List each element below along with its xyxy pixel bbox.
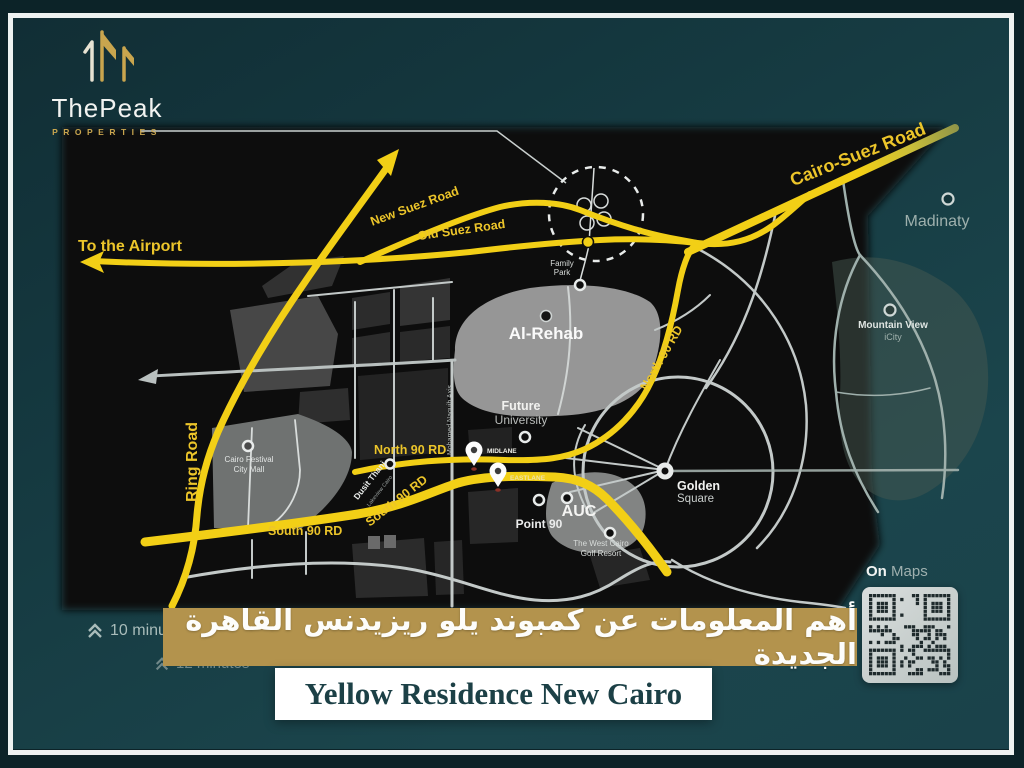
english-title-banner: Yellow Residence New Cairo — [275, 668, 712, 720]
naguib-axis-label: Mohamed Naguib Axis — [447, 384, 454, 455]
cairo-festival-marker — [243, 441, 253, 451]
on-maps-label-bold: On — [866, 563, 887, 580]
north-90-h-label: North 90 RD — [374, 443, 446, 457]
future-university-label-1: Future — [502, 399, 541, 413]
golf-resort-label-2: Golf Resort — [581, 549, 622, 558]
brand-tagline: PROPERTIES — [42, 127, 172, 137]
to-airport-label: To the Airport — [78, 238, 183, 255]
midlane-pin-label: MIDLANE — [487, 448, 517, 455]
brand-name: ThePeak — [42, 93, 172, 124]
golf-resort-label-1: The West Cairo — [573, 539, 629, 548]
south-90-h-label: South 90 RD — [268, 524, 342, 538]
golden-square-label-2: Square — [677, 493, 714, 505]
al-rehab-label: Al-Rehab — [509, 324, 584, 343]
on-maps-label: On Maps — [866, 563, 958, 580]
ring-road-label: Ring Road — [184, 422, 201, 502]
point-90-label: Point 90 — [516, 517, 563, 531]
family-park-label-1: Family — [550, 259, 574, 268]
future-university-label-2: University — [495, 413, 548, 427]
cairo-festival-label-2: City Mall — [234, 465, 265, 474]
auc-marker — [562, 493, 572, 503]
qr-code — [862, 587, 958, 683]
english-title-text: Yellow Residence New Cairo — [305, 676, 682, 712]
icity-label: iCity — [884, 332, 902, 342]
mountain-view-region — [832, 257, 988, 500]
mountain-view-marker — [885, 305, 896, 316]
logo-building-icon — [42, 26, 172, 86]
suez-junction-node — [583, 237, 594, 248]
arabic-title-text: أهم المعلومات عن كمبوند يلو ريزيدنس القا… — [163, 603, 857, 671]
double-chevron-up-icon — [86, 622, 104, 640]
point-90-marker — [534, 495, 544, 505]
cairo-festival-label-1: Cairo Festival — [225, 455, 274, 464]
eastlane-pin-label: EASTLANE — [510, 475, 546, 482]
future-university-marker — [520, 432, 530, 442]
family-park-marker — [575, 280, 585, 290]
arabic-title-banner: أهم المعلومات عن كمبوند يلو ريزيدنس القا… — [163, 608, 857, 666]
madinaty-label: Madinaty — [905, 213, 970, 230]
auc-label: AUC — [562, 503, 597, 520]
al-rehab-region — [454, 285, 661, 416]
golden-square-label-1: Golden — [677, 479, 720, 493]
al-rehab-marker — [541, 311, 552, 322]
on-maps-block: On Maps — [862, 563, 958, 683]
dusit-thani-marker — [386, 460, 395, 469]
brand-logo: ThePeak PROPERTIES — [42, 26, 172, 137]
on-maps-label-rest: Maps — [887, 563, 928, 580]
family-park-label-2: Park — [554, 268, 571, 277]
mountain-view-label: Mountain View — [858, 320, 928, 331]
madinaty-marker — [943, 194, 954, 205]
golf-resort-marker — [605, 528, 615, 538]
